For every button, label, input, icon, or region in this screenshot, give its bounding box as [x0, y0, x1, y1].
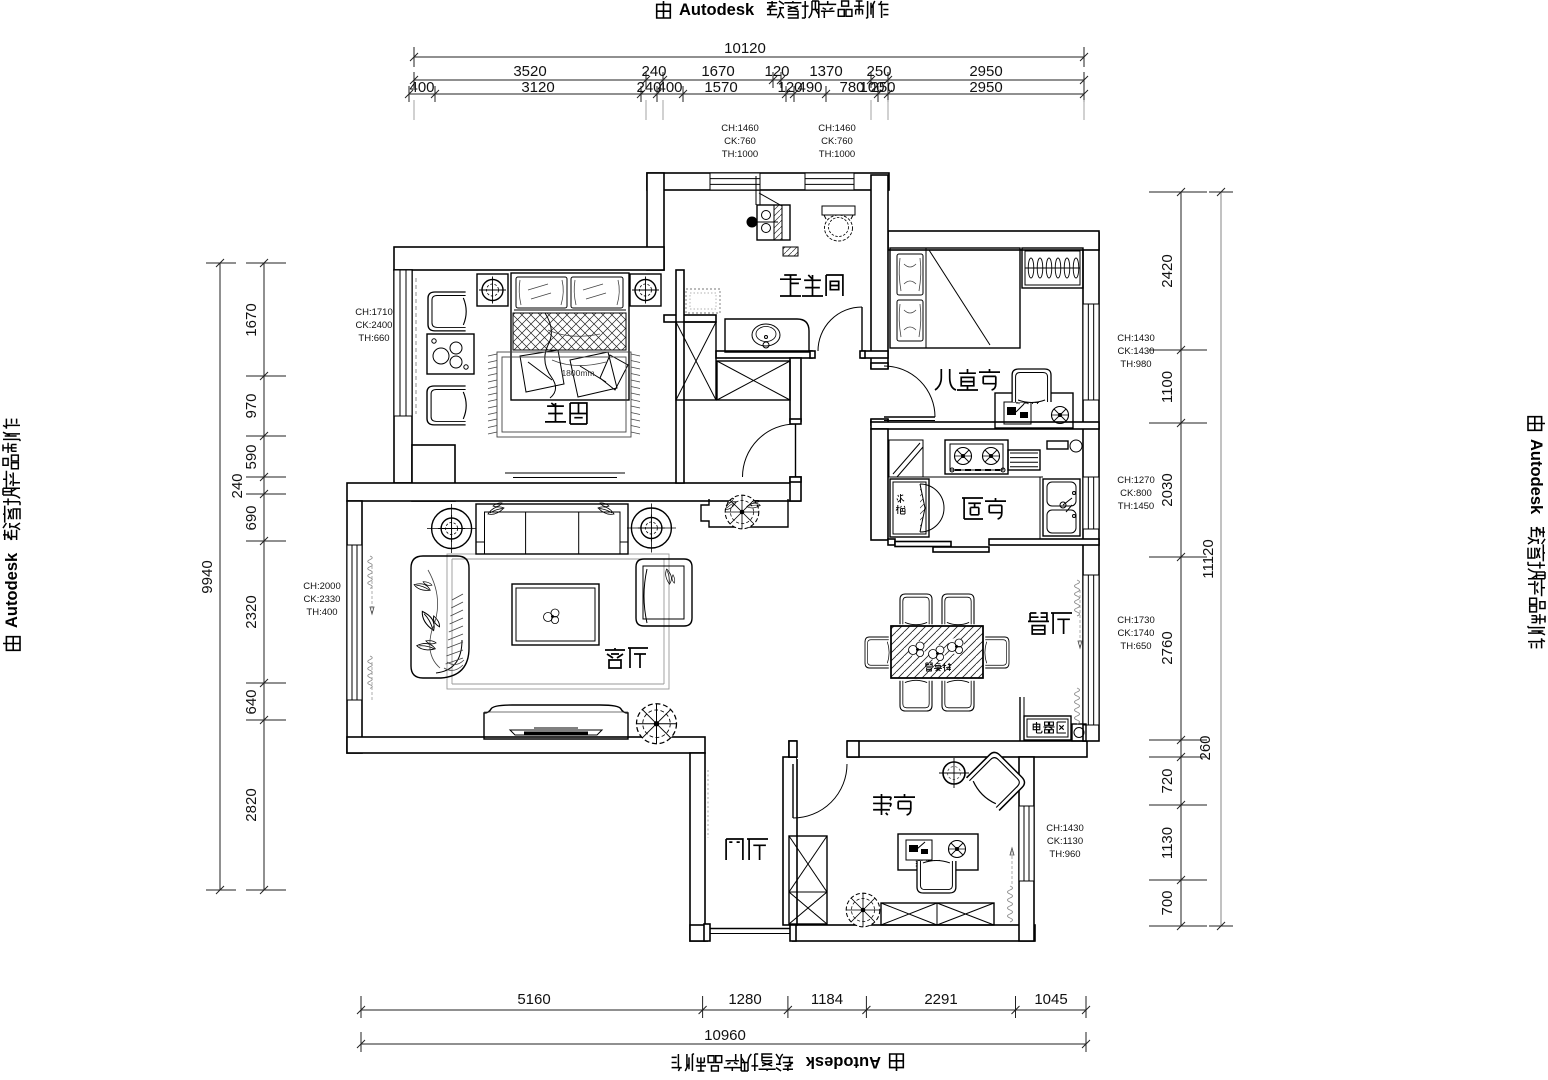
svg-text:TH:400: TH:400: [306, 607, 337, 618]
svg-text:260: 260: [1197, 735, 1214, 760]
svg-text:250: 250: [870, 79, 895, 96]
svg-text:CK:1740: CK:1740: [1118, 628, 1155, 639]
svg-text:5160: 5160: [517, 991, 550, 1008]
svg-text:1670: 1670: [701, 63, 734, 80]
svg-text:2320: 2320: [243, 595, 260, 628]
svg-text:3520: 3520: [513, 63, 546, 80]
svg-text:1800mm: 1800mm: [561, 368, 594, 378]
svg-text:CH:2000: CH:2000: [303, 581, 341, 592]
svg-text:400: 400: [409, 79, 434, 96]
svg-text:2291: 2291: [924, 991, 957, 1008]
svg-text:2420: 2420: [1159, 254, 1176, 287]
svg-text:970: 970: [243, 393, 260, 418]
svg-text:240: 240: [229, 473, 246, 498]
svg-text:640: 640: [243, 689, 260, 714]
svg-text:490: 490: [797, 79, 822, 96]
svg-text:TH:960: TH:960: [1049, 849, 1080, 860]
svg-text:690: 690: [243, 505, 260, 530]
svg-text:1370: 1370: [809, 63, 842, 80]
svg-text:CK:2330: CK:2330: [304, 594, 341, 605]
svg-text:2760: 2760: [1159, 631, 1176, 664]
svg-text:TH:660: TH:660: [358, 333, 389, 344]
svg-text:1100: 1100: [1159, 371, 1176, 403]
svg-text:2820: 2820: [243, 788, 260, 821]
svg-text:CH:1270: CH:1270: [1117, 475, 1155, 486]
svg-text:TH:1000: TH:1000: [819, 149, 855, 160]
svg-text:2950: 2950: [969, 79, 1002, 96]
svg-text:CH:1430: CH:1430: [1046, 823, 1084, 834]
svg-text:CH:1460: CH:1460: [721, 123, 759, 134]
svg-text:2030: 2030: [1159, 473, 1176, 506]
svg-text:CK:1130: CK:1130: [1047, 836, 1083, 847]
svg-text:11120: 11120: [1200, 539, 1217, 579]
svg-text:1670: 1670: [243, 303, 260, 336]
svg-text:700: 700: [1159, 890, 1176, 915]
svg-text:TH:980: TH:980: [1120, 359, 1151, 370]
svg-text:250: 250: [866, 63, 891, 80]
svg-text:720: 720: [1159, 768, 1176, 793]
svg-text:CH:1430: CH:1430: [1117, 333, 1155, 344]
svg-text:240: 240: [641, 63, 666, 80]
svg-text:1130: 1130: [1159, 827, 1176, 859]
svg-text:CH:1710: CH:1710: [355, 307, 393, 318]
svg-text:1280: 1280: [728, 991, 761, 1008]
svg-text:590: 590: [243, 444, 260, 469]
svg-text:CK:1430: CK:1430: [1118, 346, 1155, 357]
svg-text:120: 120: [764, 63, 789, 80]
svg-text:400: 400: [657, 79, 682, 96]
svg-text:CK:2400: CK:2400: [356, 320, 393, 331]
svg-text:1045: 1045: [1034, 991, 1067, 1008]
svg-text:3120: 3120: [521, 79, 554, 96]
svg-text:TH:1000: TH:1000: [722, 149, 758, 160]
svg-text:2950: 2950: [969, 63, 1002, 80]
svg-text:1570: 1570: [704, 79, 737, 96]
svg-text:CK:760: CK:760: [821, 136, 853, 147]
svg-text:1184: 1184: [811, 991, 843, 1008]
svg-text:CH:1460: CH:1460: [818, 123, 856, 134]
svg-text:10120: 10120: [724, 40, 766, 57]
svg-text:CH:1730: CH:1730: [1117, 615, 1155, 626]
svg-text:10960: 10960: [704, 1027, 746, 1044]
svg-text:TH:1450: TH:1450: [1118, 501, 1154, 512]
svg-text:TH:650: TH:650: [1120, 641, 1151, 652]
svg-text:9940: 9940: [199, 560, 216, 593]
svg-text:CK:760: CK:760: [724, 136, 756, 147]
svg-text:CK:800: CK:800: [1120, 488, 1152, 499]
